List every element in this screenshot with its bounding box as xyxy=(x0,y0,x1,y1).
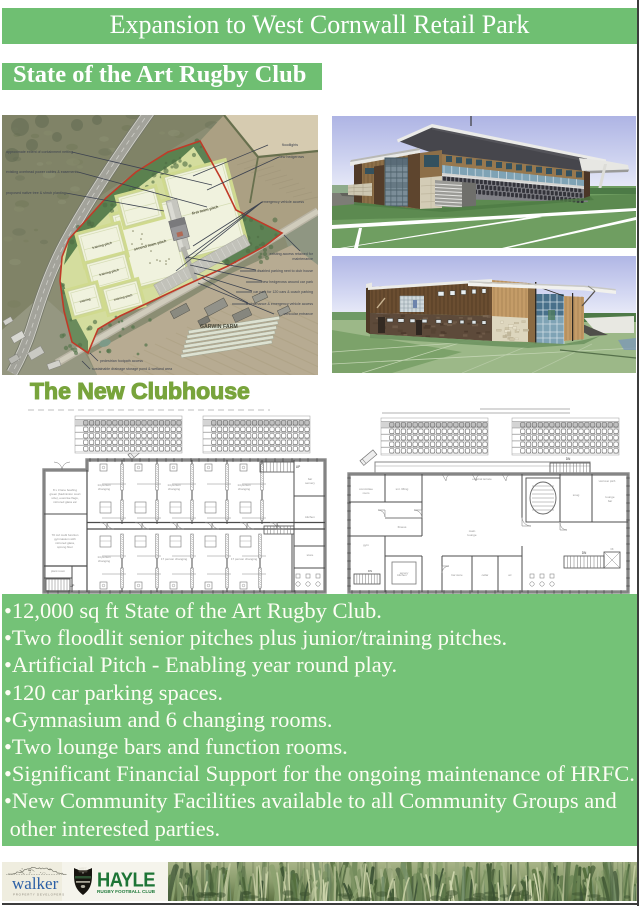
svg-text:car park for 120 cars & coach: car park for 120 cars & coach parking xyxy=(253,290,313,294)
svg-text:external terrace: external terrace xyxy=(472,477,492,481)
svg-text:proposed native tree & shrub p: proposed native tree & shrub planting xyxy=(6,191,66,195)
svg-text:pedestrian footpath access: pedestrian footpath access xyxy=(100,359,143,363)
svg-text:room: room xyxy=(363,491,370,495)
svg-text:sustainable drainage storage p: sustainable drainage storage pond & wetl… xyxy=(92,367,172,371)
svg-text:snr. lifting: snr. lifting xyxy=(396,487,409,491)
svg-text:new hedgerows around car park: new hedgerows around car park xyxy=(262,280,314,284)
svg-text:servery: servery xyxy=(305,481,315,485)
svg-text:RUGBY FOOTBALL CLUB: RUGBY FOOTBALL CLUB xyxy=(97,889,156,894)
svg-text:maintenance: maintenance xyxy=(292,257,313,261)
svg-text:cellar: cellar xyxy=(482,573,489,577)
svg-text:disabled parking next to club: disabled parking next to club house xyxy=(257,269,313,273)
svg-text:approximate extent of containm: approximate extent of containment nettin… xyxy=(6,150,73,154)
svg-text:plant room: plant room xyxy=(51,569,66,573)
svg-text:UP: UP xyxy=(70,584,75,588)
svg-text:17 person changing: 17 person changing xyxy=(231,557,258,561)
svg-text:bar: bar xyxy=(608,499,612,503)
svg-text:snug: snug xyxy=(573,493,580,497)
svg-text:kitchen: kitchen xyxy=(305,515,315,519)
svg-text:maintenance & emergency vehicl: maintenance & emergency vehicle access xyxy=(246,302,313,306)
svg-text:DN: DN xyxy=(582,551,587,555)
svg-text:wc: wc xyxy=(508,573,512,577)
svg-text:changing: changing xyxy=(238,487,251,491)
svg-text:changing: changing xyxy=(168,487,181,491)
svg-text:17 person changing: 17 person changing xyxy=(161,557,188,561)
svg-text:GARWIN FARM: GARWIN FARM xyxy=(200,324,238,330)
svg-text:existing overhead power cables: existing overhead power cables & easemen… xyxy=(6,170,79,174)
svg-text:UP: UP xyxy=(296,465,300,469)
svg-text:new hedgerows: new hedgerows xyxy=(279,155,304,159)
svg-text:floodlights: floodlights xyxy=(282,143,298,147)
svg-text:bar store: bar store xyxy=(451,573,462,577)
svg-text:DN: DN xyxy=(368,569,372,573)
svg-text:mirrored glass etc: mirrored glass etc xyxy=(53,500,77,504)
svg-text:gym: gym xyxy=(363,543,369,547)
svg-text:sprung floor: sprung floor xyxy=(57,545,73,549)
svg-text:changing: changing xyxy=(98,487,111,491)
svg-text:existing access retained for: existing access retained for xyxy=(269,252,313,256)
svg-text:servery: servery xyxy=(400,571,409,575)
svg-text:HRFC: HRFC xyxy=(79,866,87,870)
svg-text:emergency vehicle access: emergency vehicle access xyxy=(262,200,304,204)
svg-text:walker: walker xyxy=(12,874,59,893)
svg-text:fitness: fitness xyxy=(398,525,407,529)
svg-text:DN: DN xyxy=(566,457,571,461)
svg-text:PROPERTY DEVELOPERS: PROPERTY DEVELOPERS xyxy=(13,893,65,897)
svg-text:lift: lift xyxy=(611,547,614,551)
svg-text:lounge: lounge xyxy=(467,533,476,537)
svg-text:void over pitch: void over pitch xyxy=(599,479,616,483)
svg-text:changing: changing xyxy=(98,559,111,563)
svg-text:vehicular entrance: vehicular entrance xyxy=(284,312,313,316)
svg-text:store: store xyxy=(307,553,314,557)
